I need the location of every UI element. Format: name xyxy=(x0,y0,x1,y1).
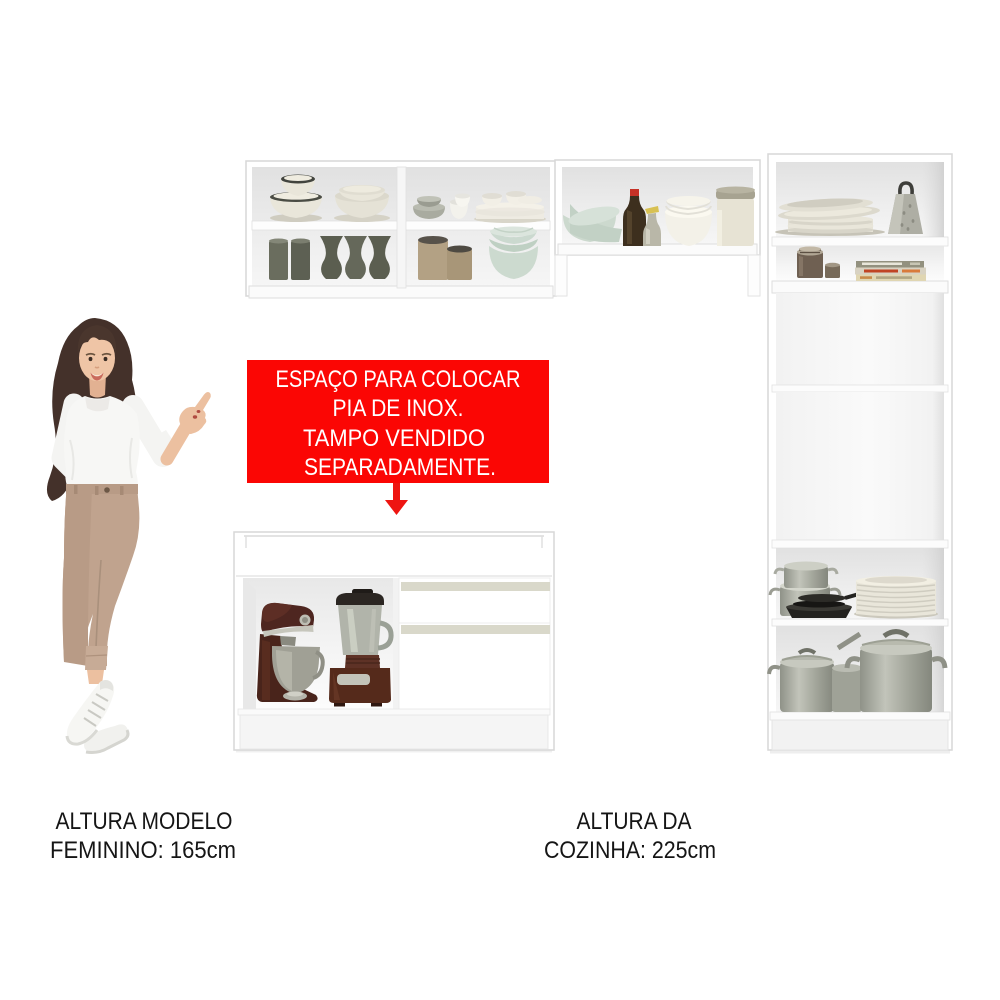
svg-text:ESPAÇO PARA COLOCAR: ESPAÇO PARA COLOCAR xyxy=(276,366,521,393)
svg-text:FEMININO: 165cm: FEMININO: 165cm xyxy=(50,837,236,864)
svg-text:COZINHA: 225cm: COZINHA: 225cm xyxy=(544,837,716,864)
svg-text:ALTURA DA: ALTURA DA xyxy=(577,808,692,835)
svg-text:ALTURA MODELO: ALTURA MODELO xyxy=(56,808,233,835)
svg-text:SEPARADAMENTE.: SEPARADAMENTE. xyxy=(304,454,496,481)
svg-text:TAMPO VENDIDO: TAMPO VENDIDO xyxy=(303,425,485,452)
svg-text:PIA DE INOX.: PIA DE INOX. xyxy=(333,395,464,422)
